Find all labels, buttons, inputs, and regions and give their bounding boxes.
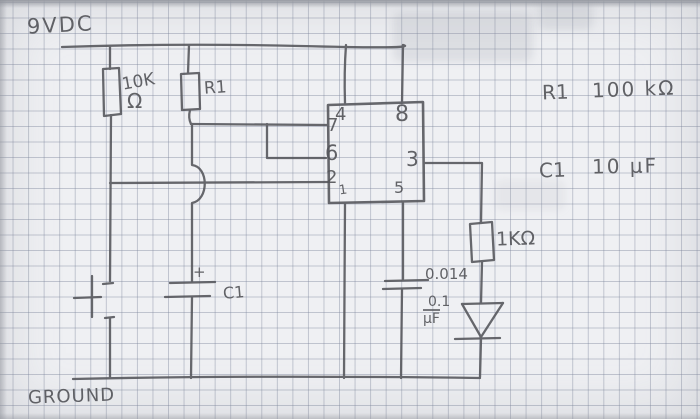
ic-pin3-label: 3	[406, 149, 419, 169]
ic-pin6-label: 6	[325, 143, 338, 164]
ground-label: GROUND	[28, 386, 116, 407]
wire-resistor-to-led	[481, 262, 482, 303]
wire-pin4-to-rail	[345, 45, 346, 103]
wire-node-to-c1-with-hop	[192, 124, 205, 282]
pushbutton-terminal-top	[103, 283, 113, 284]
led-anode-bar	[462, 303, 503, 304]
pullup-resistor-unit-label: Ω	[127, 91, 142, 111]
supply-voltage-label: 9VDC	[26, 13, 94, 37]
wire-pin1-to-ground	[344, 203, 345, 378]
note-r1-name: R1	[542, 82, 569, 103]
wire-jog-to-pin6	[267, 124, 326, 158]
wire-top-rail	[62, 45, 405, 48]
led-triangle-left	[462, 304, 481, 337]
ic-pin1-label: 1	[338, 183, 348, 197]
r1-resistor-body	[181, 73, 200, 110]
wire-pin3-out	[424, 163, 482, 223]
c1-plate-top	[170, 282, 215, 283]
c1-polarity-mark: +	[193, 265, 206, 280]
control-cap-value-line3: μF	[423, 309, 440, 326]
note-c1-value: 10 μF	[592, 155, 658, 176]
wire-trigger-horizontal	[110, 182, 328, 183]
note-r1-value: 100 kΩ	[592, 78, 676, 101]
pushbutton-actuator-horizontal	[74, 297, 101, 298]
led-cathode-bar	[455, 338, 500, 339]
wire-pin8-to-rail	[402, 45, 403, 103]
output-resistor-value-label: 1KΩ	[496, 229, 536, 249]
wire-c1-to-ground	[191, 297, 192, 378]
led-triangle-right	[481, 303, 503, 337]
note-c1-name: C1	[539, 160, 566, 181]
wire-control-cap-to-ground	[401, 289, 402, 378]
control-cap-value-line1: 0.014	[425, 267, 468, 282]
wire-ground-rail	[73, 377, 480, 379]
ic-pin7-label: 7	[327, 117, 338, 135]
wire-rail-to-r1	[188, 45, 189, 73]
r1-name-label: R1	[203, 79, 227, 98]
ic-pin2-label: 2	[326, 169, 337, 187]
ic-pin8-label: 8	[395, 104, 409, 126]
pullup-resistor-body	[103, 68, 121, 116]
control-cap-plate-top	[385, 280, 428, 281]
wire-to-pin7	[191, 124, 328, 125]
output-resistor-body	[470, 222, 494, 262]
wire-led-to-ground	[480, 339, 481, 377]
ic-pin5-label: 5	[394, 180, 404, 196]
wire-pullup-to-switch	[110, 115, 111, 281]
circuit-sketch-photo: 9VDC GROUND 10K Ω R1 + C1 1KΩ 0.014 0.1 …	[0, 0, 700, 419]
c1-plate-bottom	[165, 296, 210, 297]
wire-r1-bottom	[189, 110, 191, 124]
c1-name-label: C1	[222, 284, 245, 302]
control-cap-value-line2: 0.1	[428, 295, 450, 309]
schematic-drawing	[0, 0, 700, 419]
